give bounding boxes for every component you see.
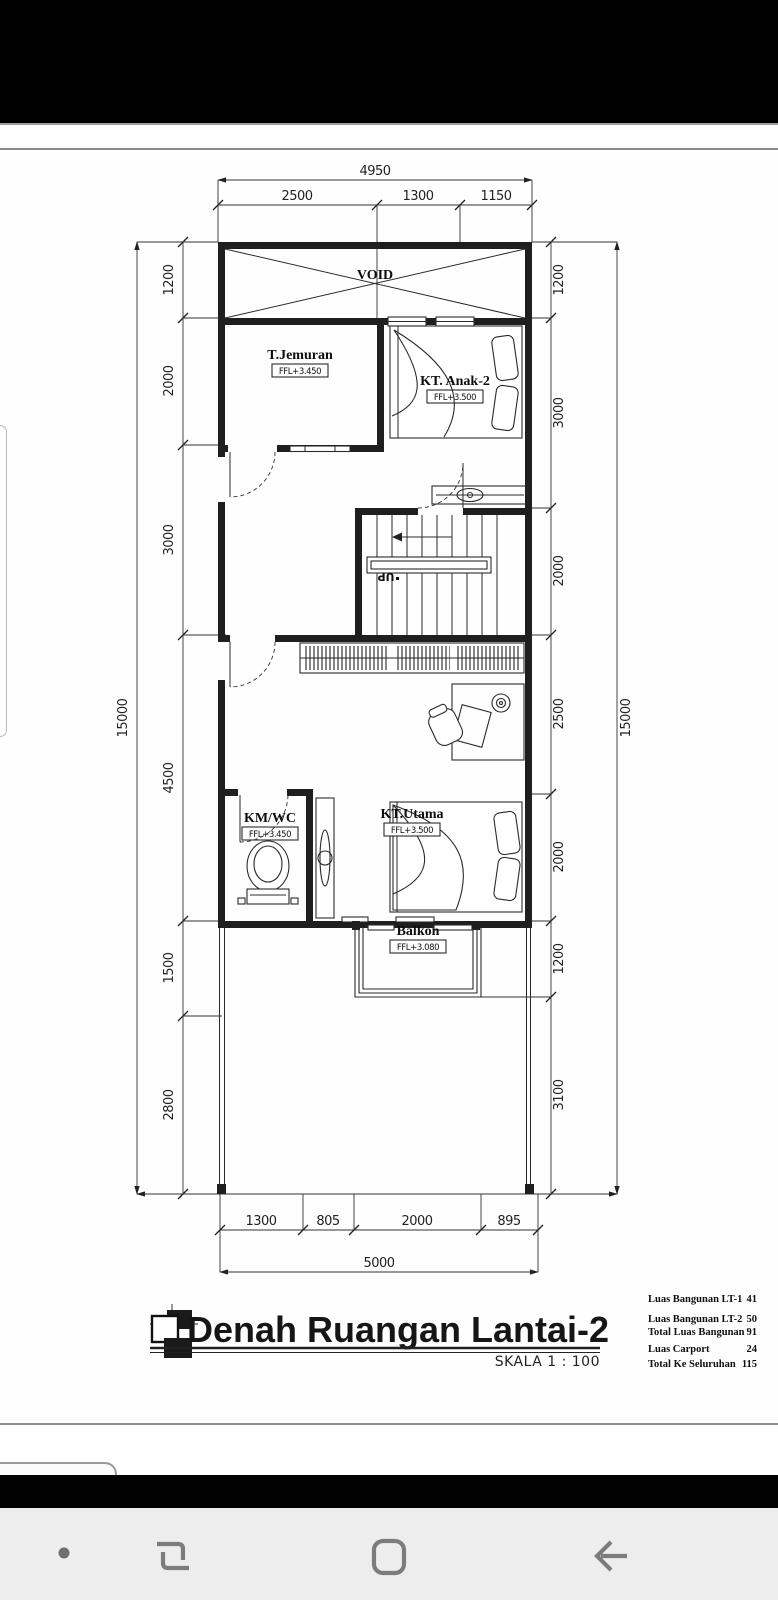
- recents-button[interactable]: [157, 1544, 189, 1568]
- ffl-anak2: FFL+3.500: [434, 393, 476, 403]
- dim-right-6: 3100: [552, 1079, 567, 1110]
- room-label-void: VOID: [357, 268, 393, 283]
- home-button[interactable]: [374, 1541, 404, 1573]
- dim-left-total: 15000: [116, 698, 131, 737]
- room-label-anak2: KT. Anak-2: [420, 374, 490, 389]
- bottom-black-strip: [0, 1475, 778, 1508]
- room-label-balkon: Balkon: [397, 924, 440, 939]
- area-row-0-label: Luas Bangunan LT-1: [648, 1294, 742, 1305]
- home-icon: [374, 1541, 404, 1573]
- dim-bottom-total: 5000: [363, 1256, 394, 1271]
- cabinet-icon: [316, 798, 334, 918]
- dim-top-0: 2500: [281, 189, 312, 204]
- dim-left-3: 4500: [162, 762, 177, 793]
- edge-panel-handle[interactable]: [0, 425, 7, 737]
- back-button[interactable]: [597, 1542, 627, 1570]
- status-bar: [0, 0, 778, 123]
- dim-right-4: 2000: [552, 841, 567, 872]
- area-row-1-label: Luas Bangunan LT-2: [648, 1314, 742, 1325]
- room-label-jemuran: T.Jemuran: [267, 348, 333, 363]
- toilet-icon: [238, 841, 298, 904]
- scale-label: SKALA 1 : 100: [495, 1354, 600, 1370]
- dim-right-0: 1200: [552, 264, 567, 295]
- area-row-1-value: 50: [747, 1314, 758, 1325]
- dim-right-2: 2000: [552, 555, 567, 586]
- room-label-kmwc: KM/WC: [244, 811, 296, 826]
- area-row-2-value: 91: [747, 1327, 758, 1338]
- dim-left-2: 3000: [162, 524, 177, 555]
- sheet-corner-tab: [0, 1462, 117, 1476]
- desk-icon: [424, 684, 524, 760]
- stairs-up-label: UP: [378, 570, 395, 583]
- dim-left-5: 2800: [162, 1089, 177, 1120]
- dim-top-total: 4950: [359, 164, 390, 179]
- area-row-3-label: Luas Carport: [648, 1344, 710, 1355]
- dim-right-3: 2500: [552, 698, 567, 729]
- top-white-band: [0, 123, 778, 150]
- dim-bottom-2: 2000: [401, 1214, 432, 1229]
- back-icon: [597, 1542, 627, 1570]
- navigation-bar: [0, 1508, 778, 1600]
- room-label-utama: KT.Utama: [380, 807, 443, 822]
- notification-dot: [59, 1548, 70, 1559]
- dim-bottom-0: 1300: [245, 1214, 276, 1229]
- below-photo-margin: [0, 1425, 778, 1475]
- dim-bottom-1: 805: [316, 1214, 340, 1229]
- ffl-utama: FFL+3.500: [391, 826, 433, 836]
- area-row-2-label: Total Luas Bangunan: [648, 1327, 745, 1338]
- area-row-3-value: 24: [747, 1344, 758, 1355]
- dimension-bottom: 1300 805 2000 895 5000: [137, 1194, 617, 1272]
- dim-bottom-3: 895: [497, 1214, 521, 1229]
- dim-right-total: 15000: [619, 698, 634, 737]
- dim-right-5: 1200: [552, 943, 567, 974]
- area-row-4-value: 115: [742, 1359, 757, 1370]
- ffl-kmwc: FFL+3.450: [249, 830, 291, 840]
- area-table: Luas Bangunan LT-1 41 Luas Bangunan LT-2…: [648, 1294, 758, 1370]
- wardrobe: [300, 643, 524, 673]
- dim-left-4: 1500: [162, 952, 177, 983]
- dimension-left: 15000 1200 2000 3000 4500 1500 2800: [116, 237, 226, 1199]
- title-block: Denah Ruangan Lantai-2 SKALA 1 : 100: [150, 1304, 609, 1370]
- floor-plan-drawing: 4950 2500 1300 1150 15000: [0, 154, 778, 1423]
- dim-top-2: 1150: [480, 189, 511, 204]
- void-area: VOID: [225, 249, 525, 318]
- drawing-title: Denah Ruangan Lantai-2: [187, 1309, 609, 1350]
- floor-plan-photo[interactable]: 4950 2500 1300 1150 15000: [0, 154, 778, 1425]
- area-row-4-label: Total Ke Seluruhan: [648, 1359, 736, 1370]
- area-row-0-value: 41: [747, 1294, 758, 1305]
- dimension-top: 4950 2500 1300 1150: [213, 164, 537, 318]
- dim-left-0: 1200: [162, 264, 177, 295]
- ffl-balkon: FFL+3.080: [397, 943, 439, 953]
- dim-left-1: 2000: [162, 365, 177, 396]
- dim-right-1: 3000: [552, 397, 567, 428]
- dim-top-1: 1300: [402, 189, 433, 204]
- phone-screen: 4950 2500 1300 1150 15000: [0, 0, 778, 1600]
- ffl-jemuran: FFL+3.450: [279, 367, 321, 377]
